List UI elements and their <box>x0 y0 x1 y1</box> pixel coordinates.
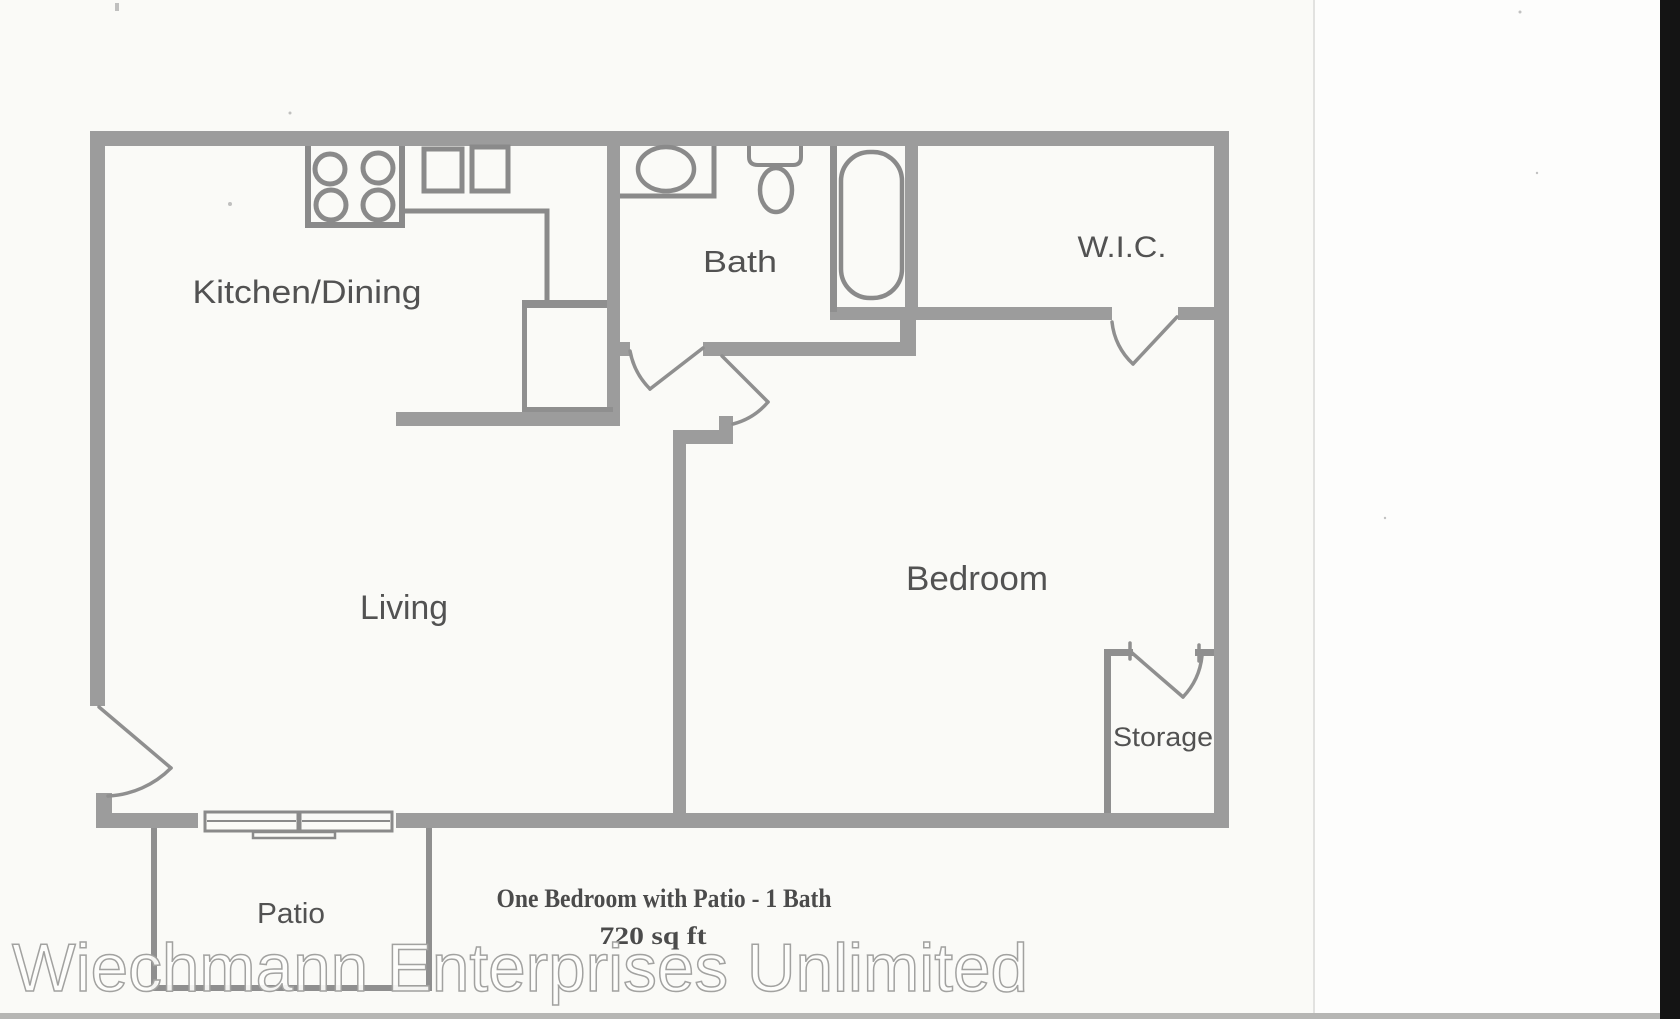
label-patio: Patio <box>257 898 325 930</box>
scan-speck <box>1536 172 1538 174</box>
label-kitchen-dining: Kitchen/Dining <box>193 274 422 310</box>
wall-bath-bottom <box>703 342 916 356</box>
pantry-left <box>522 300 527 412</box>
watermark: Wiechmann Enterprises Unlimited <box>12 930 1028 1006</box>
wall-wic-bottom-right <box>1178 307 1214 320</box>
scan-speck <box>228 202 232 206</box>
page-fold-line <box>1313 0 1315 1013</box>
wall-wic-bottom-left <box>830 307 1112 320</box>
wall-bottom-left <box>96 813 198 828</box>
label-storage: Storage <box>1113 722 1213 752</box>
wall-storage-west <box>1104 649 1111 813</box>
pantry-bottom <box>522 407 613 412</box>
wall-tub-wic-divider <box>905 146 918 320</box>
wall-bedroom-door-stub <box>719 416 733 432</box>
pantry-top <box>522 300 607 308</box>
scan-bottom-band <box>0 1013 1662 1019</box>
scan-speck <box>1384 517 1386 519</box>
wall-bottom-main <box>396 813 1229 828</box>
wall-tub-left <box>830 146 837 312</box>
label-bedroom: Bedroom <box>906 560 1048 598</box>
wall-top <box>90 131 1229 146</box>
label-wic: W.I.C. <box>1078 231 1167 264</box>
wall-bedroom-west-top <box>673 430 733 444</box>
floorplan-svg: Kitchen/Dining Bath W.I.C. Living Bedroo… <box>0 0 1680 1019</box>
scan-edge-strip <box>1660 0 1680 1019</box>
wall-bath-door-jamb <box>618 342 630 356</box>
paper-right <box>1314 0 1660 1019</box>
wall-bedroom-west <box>673 430 686 813</box>
scan-background <box>0 0 1680 1019</box>
scan-speck <box>289 112 292 115</box>
plan-title-line1: One Bedroom with Patio - 1 Bath <box>497 884 832 913</box>
wall-kitchen-bath-divider <box>607 146 620 426</box>
wall-kitchen-bottom <box>396 412 620 426</box>
wall-right <box>1214 131 1229 828</box>
scan-speck <box>115 3 119 11</box>
scan-speck <box>1519 11 1522 14</box>
wall-left <box>90 131 105 706</box>
label-living: Living <box>360 589 448 627</box>
label-bath: Bath <box>703 244 777 279</box>
